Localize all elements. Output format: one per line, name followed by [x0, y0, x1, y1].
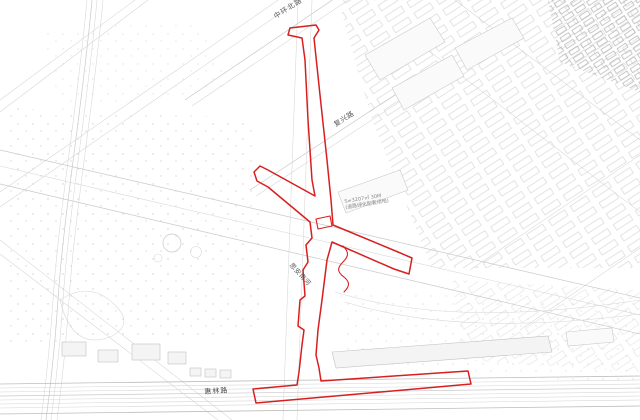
- basemap-canvas: [0, 0, 640, 420]
- route-junction-detail: [316, 216, 332, 229]
- existing-road-under-route: [283, 0, 312, 420]
- route-wavy-line: [339, 246, 349, 292]
- road-label-south: 惠林路: [204, 385, 229, 397]
- site-plan-map: 中环北路 复兴路 S=3207㎡ 30M (道路绿化配套用地) 思安南河 惠林路: [0, 0, 640, 420]
- buildings-southwest: [62, 342, 231, 378]
- railway-yard-south: [0, 376, 640, 414]
